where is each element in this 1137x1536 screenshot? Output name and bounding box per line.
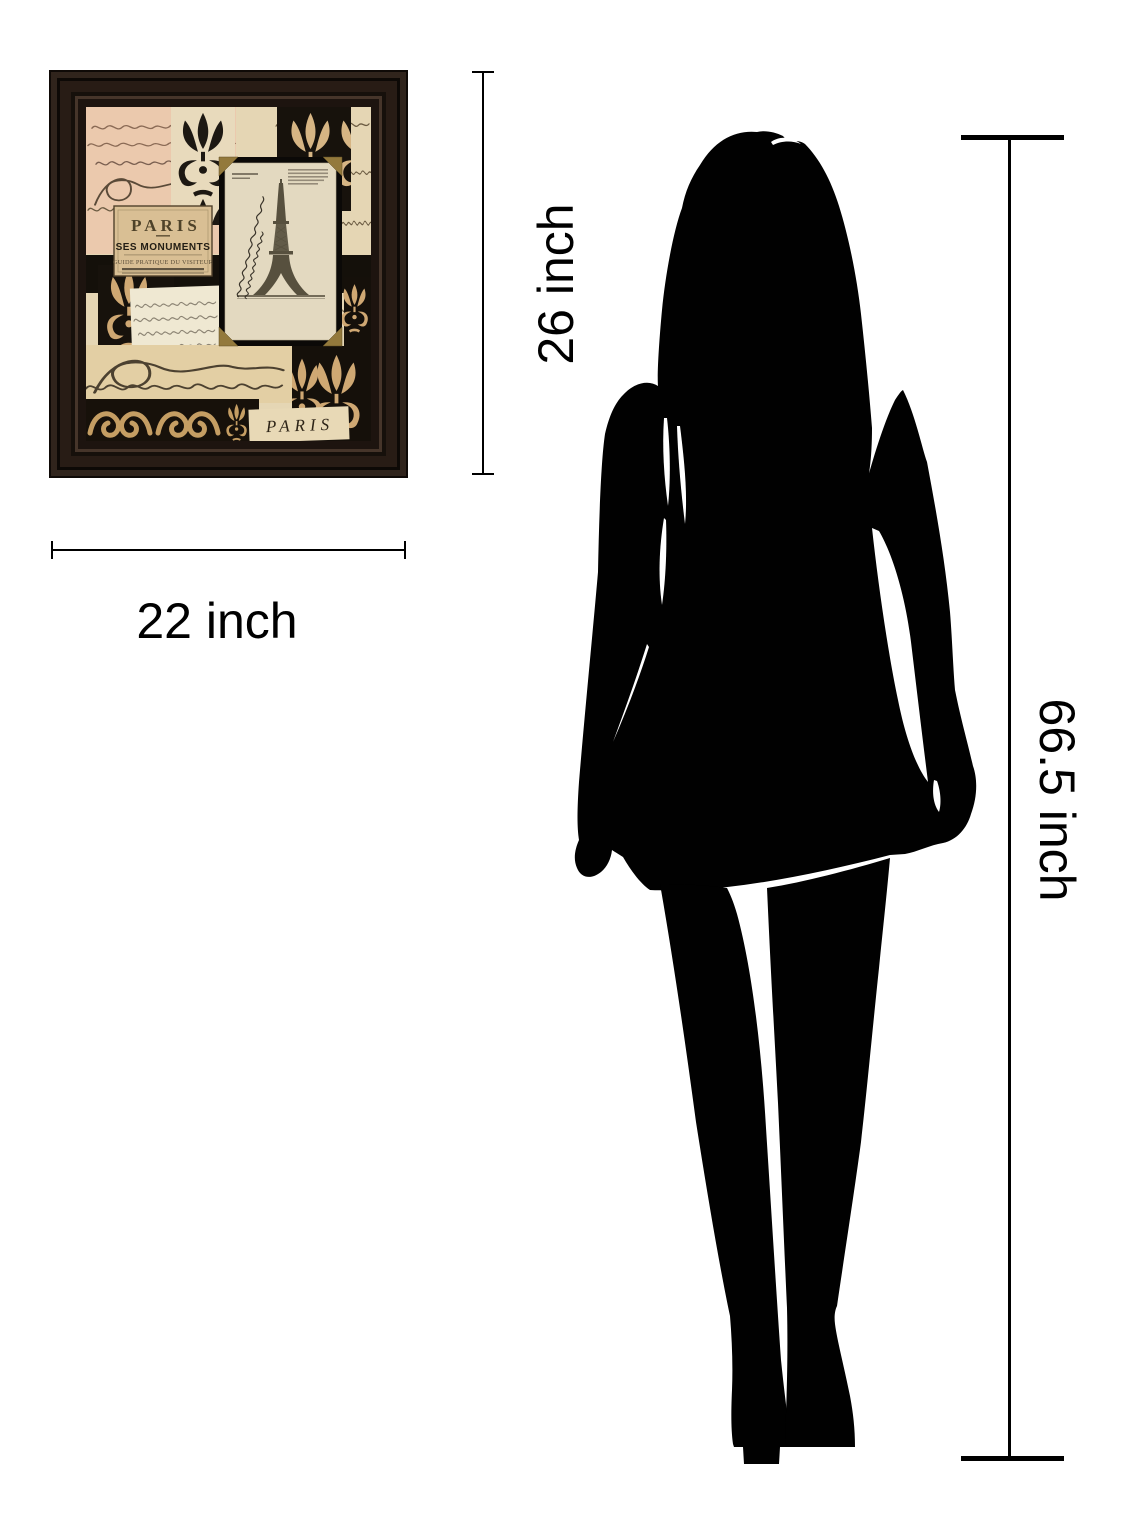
paris-collage-art: PARIS SES MONUMENTS GUIDE PRATIQUE DU VI…	[86, 107, 371, 441]
width-dimension-cap-right	[404, 541, 406, 559]
script-band	[86, 345, 301, 403]
height-dimension-cap-bottom	[472, 473, 494, 475]
width-measurement-label: 22 inch	[67, 595, 367, 647]
height-dimension-cap-top	[472, 71, 494, 73]
height-dimension-line	[482, 72, 484, 475]
silhouette-right-leg	[767, 858, 890, 1447]
framed-artwork: PARIS SES MONUMENTS GUIDE PRATIQUE DU VI…	[49, 70, 408, 478]
silhouette-body	[575, 131, 976, 890]
woman-silhouette	[565, 128, 985, 1468]
scroll-strip	[86, 399, 259, 441]
size-comparison-diagram: PARIS SES MONUMENTS GUIDE PRATIQUE DU VI…	[0, 0, 1137, 1536]
eiffel-postcard	[219, 157, 342, 346]
width-dimension-cap-left	[51, 541, 53, 559]
paris-caption: PARIS	[265, 415, 335, 436]
width-dimension-line	[52, 549, 405, 551]
poster-subtitle: SES MONUMENTS	[116, 242, 211, 253]
poster-tagline: GUIDE PRATIQUE DU VISITEUR	[113, 259, 214, 266]
person-height-measurement-label: 66.5 inch	[1031, 630, 1083, 970]
person-height-dimension-line	[1008, 137, 1011, 1461]
person-height-cap-top	[961, 135, 1064, 140]
poster-label: PARIS SES MONUMENTS GUIDE PRATIQUE DU VI…	[113, 206, 214, 276]
poster-title: PARIS	[131, 216, 201, 235]
paris-caption-strip: PARIS	[248, 406, 349, 441]
person-height-cap-bottom	[961, 1456, 1064, 1461]
